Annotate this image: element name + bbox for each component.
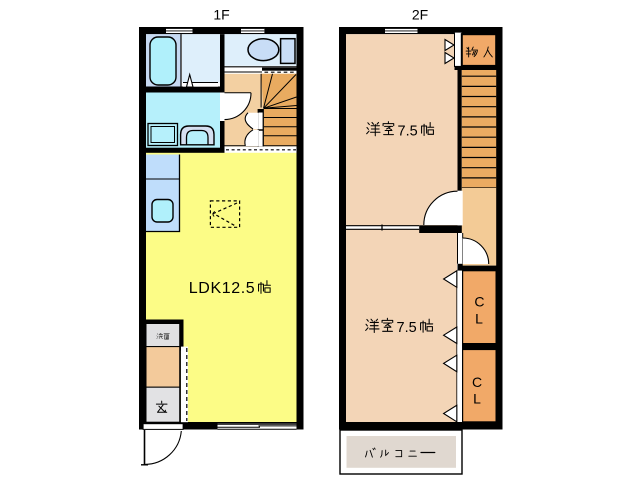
svg-text:2F: 2F bbox=[412, 7, 428, 23]
svg-text:L: L bbox=[473, 391, 481, 407]
svg-text:7.5: 7.5 bbox=[397, 320, 417, 336]
svg-text:7.5: 7.5 bbox=[398, 123, 418, 139]
svg-text:L: L bbox=[475, 311, 483, 327]
svg-text:C: C bbox=[474, 294, 484, 310]
svg-text:1F: 1F bbox=[213, 7, 229, 23]
svg-text:LDK12.5: LDK12.5 bbox=[189, 280, 255, 297]
svg-text:C: C bbox=[472, 374, 482, 390]
